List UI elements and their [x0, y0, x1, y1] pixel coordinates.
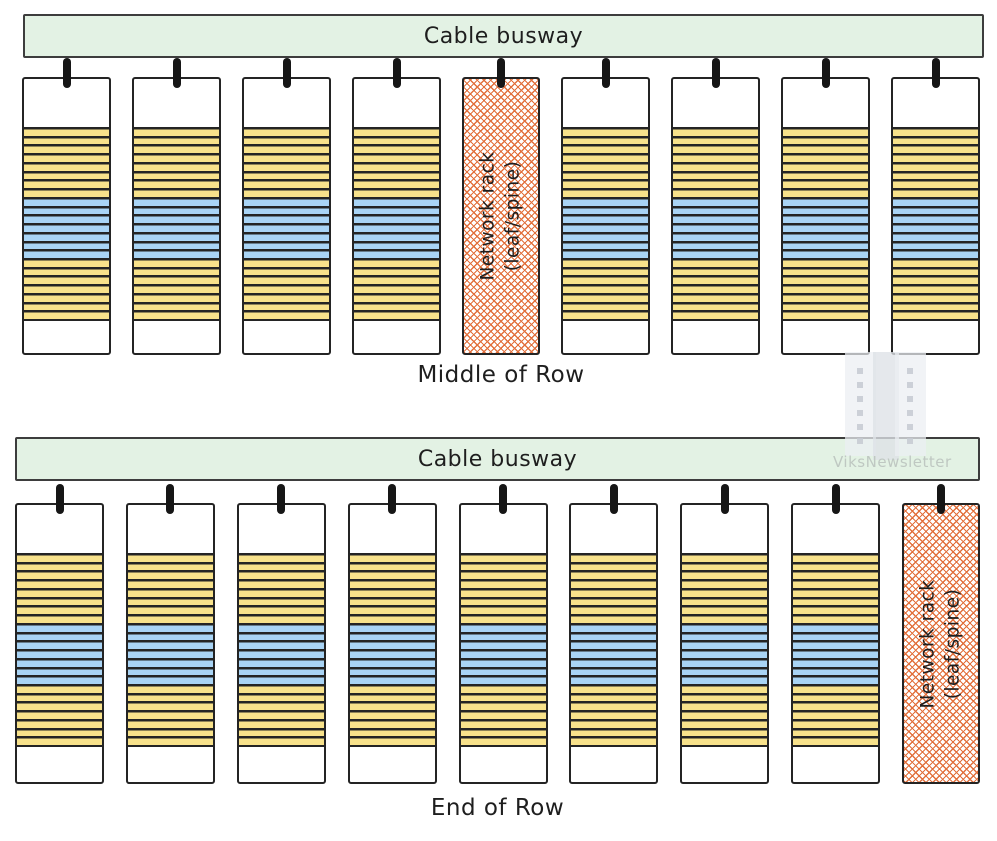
- server-unit-stripe: [134, 153, 219, 162]
- server-rack: [459, 503, 548, 784]
- server-unit-stripe: [571, 588, 656, 597]
- server-rack: [791, 503, 880, 784]
- server-unit-stripe: [563, 275, 648, 284]
- switch-unit-stripe: [893, 249, 978, 258]
- server-unit-stripe: [354, 162, 439, 171]
- server-unit-stripe: [571, 570, 656, 579]
- server-unit-stripe: [239, 693, 324, 702]
- rack-equipment-stripes: [350, 553, 435, 747]
- server-unit-stripe: [134, 171, 219, 180]
- server-unit-stripe: [134, 267, 219, 276]
- server-unit-stripe: [893, 302, 978, 311]
- switch-unit-stripe: [350, 649, 435, 658]
- server-unit-stripe: [893, 275, 978, 284]
- server-unit-stripe: [563, 258, 648, 267]
- server-unit-stripe: [793, 588, 878, 597]
- server-unit-stripe: [239, 614, 324, 623]
- server-unit-stripe: [24, 153, 109, 162]
- server-unit-stripe: [461, 728, 546, 737]
- server-unit-stripe: [682, 597, 767, 606]
- server-unit-stripe: [354, 258, 439, 267]
- busway-connector: [937, 484, 945, 514]
- switch-unit-stripe: [682, 667, 767, 676]
- server-unit-stripe: [354, 275, 439, 284]
- switch-unit-stripe: [244, 197, 329, 206]
- server-unit-stripe: [673, 136, 758, 145]
- switch-unit-stripe: [461, 667, 546, 676]
- server-unit-stripe: [783, 179, 868, 188]
- switch-unit-stripe: [893, 223, 978, 232]
- server-unit-stripe: [673, 179, 758, 188]
- server-unit-stripe: [128, 684, 213, 693]
- server-unit-stripe: [682, 588, 767, 597]
- server-unit-stripe: [571, 553, 656, 562]
- switch-unit-stripe: [350, 675, 435, 684]
- switch-unit-stripe: [783, 214, 868, 223]
- switch-unit-stripe: [244, 214, 329, 223]
- server-unit-stripe: [350, 579, 435, 588]
- server-unit-stripe: [354, 144, 439, 153]
- switch-unit-stripe: [17, 623, 102, 632]
- busway-connector: [832, 484, 840, 514]
- cable-busway-label: Cable busway: [418, 447, 577, 472]
- switch-unit-stripe: [783, 197, 868, 206]
- server-unit-stripe: [461, 701, 546, 710]
- rack-row: Network rack(leaf/spine): [15, 503, 980, 784]
- rack-equipment-stripes: [893, 127, 978, 321]
- row-caption: End of Row: [15, 795, 980, 821]
- server-unit-stripe: [350, 684, 435, 693]
- server-unit-stripe: [461, 597, 546, 606]
- busway-connector: [712, 58, 720, 88]
- server-unit-stripe: [461, 588, 546, 597]
- server-unit-stripe: [350, 693, 435, 702]
- server-unit-stripe: [461, 605, 546, 614]
- rack-blank-bottom: [571, 747, 656, 782]
- switch-unit-stripe: [461, 632, 546, 641]
- server-unit-stripe: [893, 188, 978, 197]
- server-unit-stripe: [793, 736, 878, 745]
- server-unit-stripe: [354, 153, 439, 162]
- server-unit-stripe: [673, 258, 758, 267]
- switch-unit-stripe: [128, 658, 213, 667]
- server-unit-stripe: [354, 267, 439, 276]
- server-unit-stripe: [682, 562, 767, 571]
- server-unit-stripe: [461, 553, 546, 562]
- switch-unit-stripe: [134, 206, 219, 215]
- server-unit-stripe: [350, 710, 435, 719]
- server-unit-stripe: [571, 562, 656, 571]
- server-unit-stripe: [682, 736, 767, 745]
- switch-unit-stripe: [17, 658, 102, 667]
- switch-unit-stripe: [239, 649, 324, 658]
- server-unit-stripe: [128, 605, 213, 614]
- server-unit-stripe: [682, 710, 767, 719]
- server-unit-stripe: [793, 701, 878, 710]
- server-unit-stripe: [350, 605, 435, 614]
- switch-unit-stripe: [354, 197, 439, 206]
- server-unit-stripe: [571, 719, 656, 728]
- network-rack-label-line2: (leaf/spine): [941, 579, 966, 708]
- cable-busway: Cable busway: [23, 14, 984, 58]
- server-unit-stripe: [128, 710, 213, 719]
- server-unit-stripe: [244, 302, 329, 311]
- server-unit-stripe: [893, 171, 978, 180]
- server-unit-stripe: [350, 736, 435, 745]
- server-unit-stripe: [793, 605, 878, 614]
- server-unit-stripe: [244, 188, 329, 197]
- rack-equipment-stripes: [17, 553, 102, 747]
- server-unit-stripe: [239, 728, 324, 737]
- rack-blank-bottom: [128, 747, 213, 782]
- server-unit-stripe: [128, 693, 213, 702]
- switch-unit-stripe: [571, 623, 656, 632]
- switch-unit-stripe: [17, 640, 102, 649]
- server-unit-stripe: [128, 553, 213, 562]
- switch-unit-stripe: [350, 632, 435, 641]
- server-unit-stripe: [24, 179, 109, 188]
- server-unit-stripe: [24, 127, 109, 136]
- switch-unit-stripe: [571, 658, 656, 667]
- server-unit-stripe: [793, 614, 878, 623]
- switch-unit-stripe: [563, 249, 648, 258]
- server-unit-stripe: [682, 579, 767, 588]
- switch-unit-stripe: [673, 241, 758, 250]
- switch-unit-stripe: [571, 640, 656, 649]
- rack-equipment-stripes: [128, 553, 213, 747]
- server-unit-stripe: [354, 284, 439, 293]
- server-unit-stripe: [244, 179, 329, 188]
- network-rack: Network rack(leaf/spine): [462, 77, 540, 355]
- server-unit-stripe: [783, 258, 868, 267]
- switch-unit-stripe: [239, 623, 324, 632]
- server-unit-stripe: [17, 579, 102, 588]
- server-unit-stripe: [783, 302, 868, 311]
- rack-blank-bottom: [793, 747, 878, 782]
- switch-unit-stripe: [461, 675, 546, 684]
- switch-unit-stripe: [239, 640, 324, 649]
- server-unit-stripe: [682, 701, 767, 710]
- server-unit-stripe: [134, 162, 219, 171]
- server-unit-stripe: [563, 179, 648, 188]
- server-unit-stripe: [571, 701, 656, 710]
- server-unit-stripe: [134, 310, 219, 319]
- switch-unit-stripe: [571, 667, 656, 676]
- server-unit-stripe: [134, 136, 219, 145]
- server-unit-stripe: [893, 267, 978, 276]
- server-unit-stripe: [17, 710, 102, 719]
- server-unit-stripe: [17, 701, 102, 710]
- switch-unit-stripe: [134, 214, 219, 223]
- server-unit-stripe: [128, 588, 213, 597]
- rack-equipment-stripes: [793, 553, 878, 747]
- switch-unit-stripe: [24, 206, 109, 215]
- switch-unit-stripe: [682, 649, 767, 658]
- server-unit-stripe: [563, 188, 648, 197]
- server-rack: [15, 503, 104, 784]
- server-rack: [242, 77, 331, 355]
- server-unit-stripe: [673, 302, 758, 311]
- network-rack: Network rack(leaf/spine): [902, 503, 980, 784]
- server-unit-stripe: [354, 310, 439, 319]
- switch-unit-stripe: [783, 223, 868, 232]
- server-unit-stripe: [134, 293, 219, 302]
- server-unit-stripe: [893, 144, 978, 153]
- server-unit-stripe: [893, 284, 978, 293]
- rack-blank-bottom: [682, 747, 767, 782]
- server-unit-stripe: [128, 701, 213, 710]
- busway-connector: [283, 58, 291, 88]
- server-unit-stripe: [571, 605, 656, 614]
- server-unit-stripe: [571, 728, 656, 737]
- server-unit-stripe: [783, 284, 868, 293]
- server-unit-stripe: [24, 284, 109, 293]
- switch-unit-stripe: [350, 623, 435, 632]
- server-unit-stripe: [354, 127, 439, 136]
- switch-unit-stripe: [783, 232, 868, 241]
- switch-unit-stripe: [563, 232, 648, 241]
- server-unit-stripe: [24, 188, 109, 197]
- server-unit-stripe: [783, 171, 868, 180]
- rack-equipment-stripes: [134, 127, 219, 321]
- server-unit-stripe: [128, 736, 213, 745]
- server-unit-stripe: [354, 188, 439, 197]
- server-rack: [671, 77, 760, 355]
- server-unit-stripe: [563, 310, 648, 319]
- server-unit-stripe: [244, 153, 329, 162]
- server-unit-stripe: [571, 597, 656, 606]
- switch-unit-stripe: [461, 623, 546, 632]
- server-unit-stripe: [571, 736, 656, 745]
- switch-unit-stripe: [24, 214, 109, 223]
- server-unit-stripe: [461, 736, 546, 745]
- switch-unit-stripe: [793, 649, 878, 658]
- server-unit-stripe: [783, 275, 868, 284]
- server-unit-stripe: [673, 284, 758, 293]
- rack-blank-bottom: [134, 321, 219, 353]
- server-unit-stripe: [244, 136, 329, 145]
- diagram-canvas: Cable busway Network rack(leaf/spine) Mi…: [0, 0, 997, 841]
- server-unit-stripe: [24, 136, 109, 145]
- server-rack: [22, 77, 111, 355]
- server-unit-stripe: [893, 136, 978, 145]
- switch-unit-stripe: [793, 632, 878, 641]
- rack-blank-bottom: [24, 321, 109, 353]
- switch-unit-stripe: [128, 623, 213, 632]
- switch-unit-stripe: [17, 675, 102, 684]
- server-unit-stripe: [24, 258, 109, 267]
- server-unit-stripe: [244, 144, 329, 153]
- switch-unit-stripe: [134, 241, 219, 250]
- switch-unit-stripe: [244, 241, 329, 250]
- busway-connector: [499, 484, 507, 514]
- switch-unit-stripe: [350, 640, 435, 649]
- switch-unit-stripe: [563, 197, 648, 206]
- server-unit-stripe: [893, 127, 978, 136]
- server-unit-stripe: [244, 171, 329, 180]
- switch-unit-stripe: [128, 649, 213, 658]
- switch-unit-stripe: [354, 249, 439, 258]
- server-unit-stripe: [461, 570, 546, 579]
- network-rack-label: Network rack(leaf/spine): [916, 579, 966, 708]
- server-unit-stripe: [783, 267, 868, 276]
- server-unit-stripe: [783, 127, 868, 136]
- switch-unit-stripe: [783, 241, 868, 250]
- server-unit-stripe: [673, 310, 758, 319]
- server-unit-stripe: [134, 127, 219, 136]
- network-rack-label-line2: (leaf/spine): [501, 152, 526, 281]
- server-unit-stripe: [134, 179, 219, 188]
- server-unit-stripe: [128, 597, 213, 606]
- switch-unit-stripe: [673, 206, 758, 215]
- switch-unit-stripe: [682, 623, 767, 632]
- server-unit-stripe: [350, 588, 435, 597]
- server-unit-stripe: [461, 614, 546, 623]
- server-unit-stripe: [893, 258, 978, 267]
- server-rack: [680, 503, 769, 784]
- server-unit-stripe: [134, 258, 219, 267]
- server-unit-stripe: [128, 570, 213, 579]
- switch-unit-stripe: [134, 197, 219, 206]
- server-rack: [891, 77, 980, 355]
- server-unit-stripe: [350, 562, 435, 571]
- switch-unit-stripe: [563, 241, 648, 250]
- switch-unit-stripe: [24, 232, 109, 241]
- switch-unit-stripe: [17, 649, 102, 658]
- server-unit-stripe: [682, 605, 767, 614]
- server-unit-stripe: [682, 614, 767, 623]
- server-unit-stripe: [793, 562, 878, 571]
- server-unit-stripe: [239, 719, 324, 728]
- server-unit-stripe: [17, 553, 102, 562]
- server-unit-stripe: [563, 144, 648, 153]
- switch-unit-stripe: [793, 667, 878, 676]
- switch-unit-stripe: [682, 675, 767, 684]
- switch-unit-stripe: [350, 658, 435, 667]
- server-unit-stripe: [893, 293, 978, 302]
- server-unit-stripe: [128, 562, 213, 571]
- server-unit-stripe: [571, 693, 656, 702]
- network-rack-label-line1: Network rack: [476, 152, 501, 281]
- server-unit-stripe: [17, 570, 102, 579]
- server-unit-stripe: [354, 136, 439, 145]
- server-unit-stripe: [783, 293, 868, 302]
- switch-unit-stripe: [24, 241, 109, 250]
- switch-unit-stripe: [239, 675, 324, 684]
- cable-busway: Cable busway: [15, 437, 980, 481]
- switch-unit-stripe: [682, 632, 767, 641]
- rack-blank-bottom: [17, 747, 102, 782]
- switch-unit-stripe: [354, 206, 439, 215]
- rack-equipment-stripes: [783, 127, 868, 321]
- switch-unit-stripe: [563, 206, 648, 215]
- server-unit-stripe: [461, 693, 546, 702]
- server-unit-stripe: [239, 736, 324, 745]
- switch-unit-stripe: [563, 214, 648, 223]
- server-unit-stripe: [673, 188, 758, 197]
- switch-unit-stripe: [128, 667, 213, 676]
- busway-connector: [56, 484, 64, 514]
- rack-blank-bottom: [563, 321, 648, 353]
- rack-equipment-stripes: [354, 127, 439, 321]
- switch-unit-stripe: [783, 206, 868, 215]
- switch-unit-stripe: [134, 232, 219, 241]
- server-unit-stripe: [17, 605, 102, 614]
- server-unit-stripe: [24, 267, 109, 276]
- server-unit-stripe: [17, 684, 102, 693]
- switch-unit-stripe: [239, 632, 324, 641]
- switch-unit-stripe: [793, 640, 878, 649]
- server-rack: [237, 503, 326, 784]
- server-unit-stripe: [128, 728, 213, 737]
- switch-unit-stripe: [793, 658, 878, 667]
- busway-connector: [602, 58, 610, 88]
- switch-unit-stripe: [354, 241, 439, 250]
- server-unit-stripe: [673, 275, 758, 284]
- server-unit-stripe: [783, 310, 868, 319]
- server-rack: [569, 503, 658, 784]
- busway-connector: [63, 58, 71, 88]
- server-unit-stripe: [793, 570, 878, 579]
- switch-unit-stripe: [244, 223, 329, 232]
- network-rack-label: Network rack(leaf/spine): [476, 152, 526, 281]
- busway-connector: [610, 484, 618, 514]
- rack-blank-bottom: [893, 321, 978, 353]
- switch-unit-stripe: [893, 232, 978, 241]
- server-unit-stripe: [893, 310, 978, 319]
- rack-equipment-stripes: [673, 127, 758, 321]
- server-unit-stripe: [682, 728, 767, 737]
- server-unit-stripe: [350, 597, 435, 606]
- server-unit-stripe: [128, 614, 213, 623]
- server-unit-stripe: [571, 614, 656, 623]
- switch-unit-stripe: [134, 249, 219, 258]
- switch-unit-stripe: [673, 197, 758, 206]
- server-unit-stripe: [783, 188, 868, 197]
- switch-unit-stripe: [673, 249, 758, 258]
- server-unit-stripe: [239, 588, 324, 597]
- switch-unit-stripe: [893, 241, 978, 250]
- server-unit-stripe: [893, 179, 978, 188]
- server-unit-stripe: [783, 136, 868, 145]
- switch-unit-stripe: [244, 232, 329, 241]
- busway-connector: [388, 484, 396, 514]
- server-unit-stripe: [24, 171, 109, 180]
- switch-unit-stripe: [239, 658, 324, 667]
- switch-unit-stripe: [571, 649, 656, 658]
- server-unit-stripe: [354, 179, 439, 188]
- server-unit-stripe: [461, 719, 546, 728]
- server-unit-stripe: [350, 614, 435, 623]
- server-unit-stripe: [793, 719, 878, 728]
- server-unit-stripe: [893, 162, 978, 171]
- switch-unit-stripe: [354, 223, 439, 232]
- server-unit-stripe: [563, 162, 648, 171]
- rack-equipment-stripes: [239, 553, 324, 747]
- server-unit-stripe: [354, 302, 439, 311]
- switch-unit-stripe: [350, 667, 435, 676]
- server-unit-stripe: [682, 719, 767, 728]
- row-caption: Middle of Row: [22, 362, 980, 388]
- busway-connector: [166, 484, 174, 514]
- server-unit-stripe: [793, 728, 878, 737]
- server-unit-stripe: [24, 293, 109, 302]
- server-unit-stripe: [673, 162, 758, 171]
- server-unit-stripe: [563, 171, 648, 180]
- server-unit-stripe: [244, 275, 329, 284]
- busway-connector: [721, 484, 729, 514]
- server-unit-stripe: [563, 302, 648, 311]
